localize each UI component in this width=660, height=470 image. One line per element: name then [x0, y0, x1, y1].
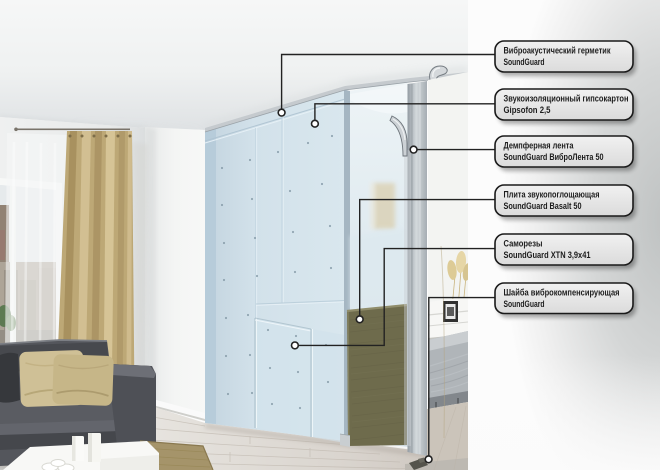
- svg-text:Демпферная лента: Демпферная лента: [504, 140, 575, 151]
- svg-text:SoundGuard ВиброЛента 50: SoundGuard ВиброЛента 50: [504, 152, 604, 163]
- svg-text:SoundGuard: SoundGuard: [504, 57, 545, 68]
- svg-text:Виброакустический герметик: Виброакустический герметик: [504, 45, 611, 56]
- svg-text:SoundGuard: SoundGuard: [504, 299, 545, 310]
- svg-text:Шайба виброкомпенсирующая: Шайба виброкомпенсирующая: [504, 287, 620, 298]
- svg-text:SoundGuard XTN 3,9x41: SoundGuard XTN 3,9x41: [504, 250, 592, 261]
- svg-text:Звукоизоляционный гипсокартон: Звукоизоляционный гипсокартон: [504, 93, 629, 104]
- svg-text:Саморезы: Саморезы: [504, 238, 543, 249]
- svg-text:SoundGuard Basalt 50: SoundGuard Basalt 50: [504, 201, 582, 212]
- svg-text:Плита звукопоглощающая: Плита звукопоглощающая: [504, 189, 600, 200]
- svg-text:Gipsofon 2,5: Gipsofon 2,5: [504, 105, 552, 116]
